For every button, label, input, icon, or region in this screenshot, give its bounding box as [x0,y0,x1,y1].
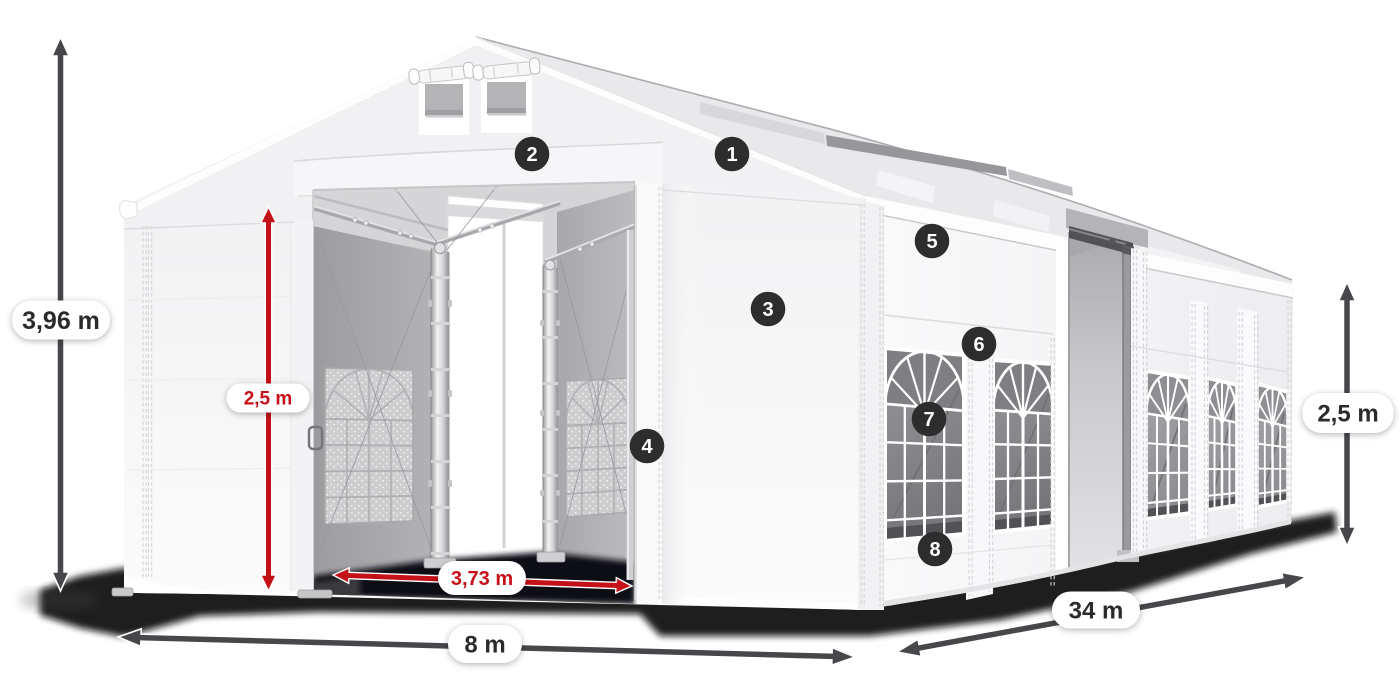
svg-text:2,5 m: 2,5 m [1317,400,1378,427]
svg-text:3: 3 [762,299,773,321]
svg-text:8: 8 [929,539,940,561]
svg-text:3,96 m: 3,96 m [22,307,100,335]
svg-text:2,5 m: 2,5 m [244,389,293,410]
svg-text:8 m: 8 m [464,631,505,658]
svg-text:7: 7 [923,409,934,431]
svg-text:1: 1 [726,144,737,166]
svg-text:2: 2 [526,144,537,166]
svg-text:34 m: 34 m [1069,597,1124,624]
svg-text:3,73 m: 3,73 m [451,568,513,590]
svg-text:5: 5 [926,231,937,253]
svg-text:6: 6 [973,334,984,356]
svg-text:4: 4 [641,436,653,458]
